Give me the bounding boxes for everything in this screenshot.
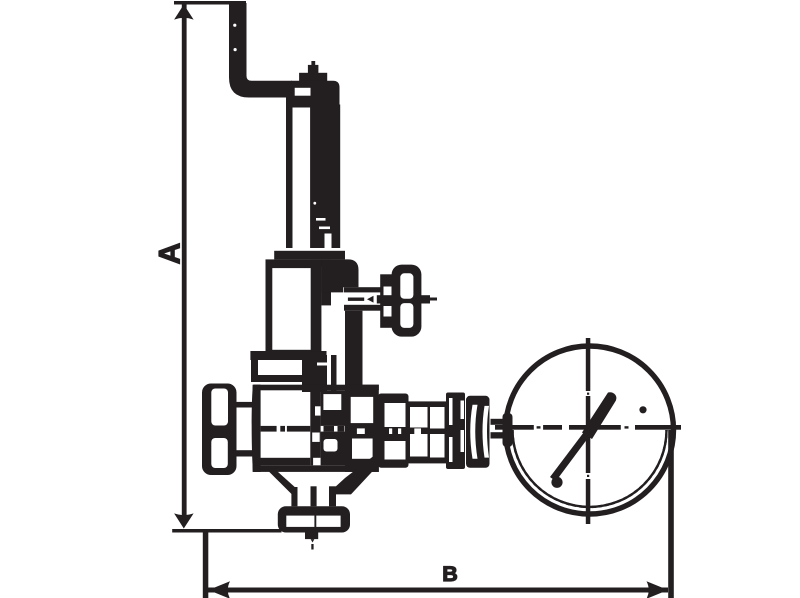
svg-text:B: B [442,562,458,586]
svg-text:A: A [154,243,187,265]
